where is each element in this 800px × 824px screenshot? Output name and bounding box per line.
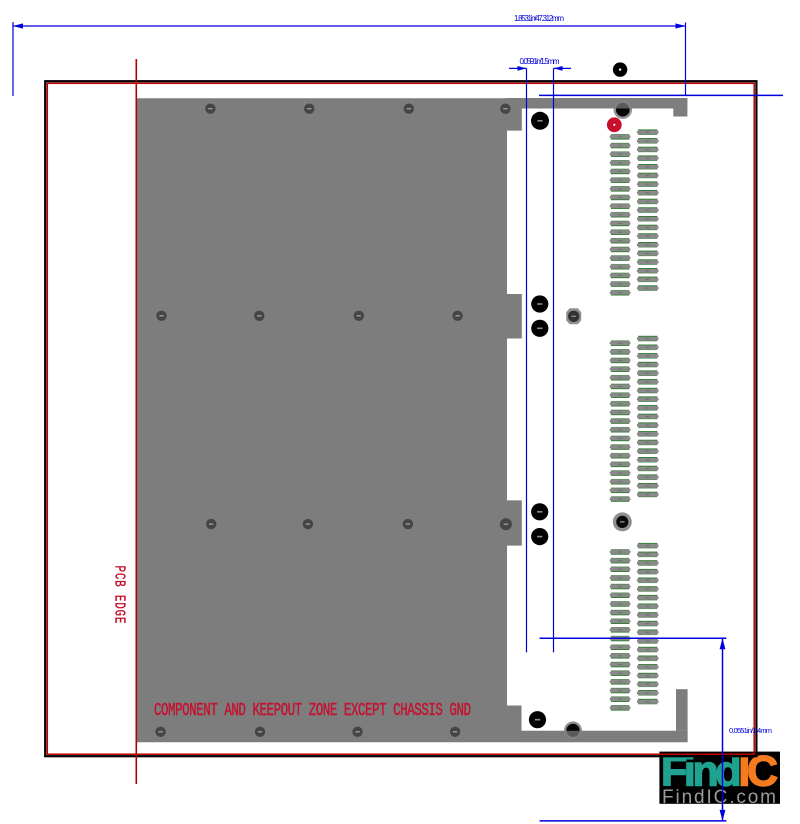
svg-text:0.0591in/1.5mm: 0.0591in/1.5mm: [520, 57, 560, 66]
svg-text:0.0551in/1.4mm: 0.0551in/1.4mm: [729, 726, 772, 735]
svg-text:COMPONENT AND KEEPOUT ZONE EXC: COMPONENT AND KEEPOUT ZONE EXCEPT CHASSI…: [154, 700, 471, 721]
svg-text:PCB EDGE: PCB EDGE: [111, 566, 128, 624]
svg-text:1.8531in/47.312mm: 1.8531in/47.312mm: [514, 14, 564, 23]
